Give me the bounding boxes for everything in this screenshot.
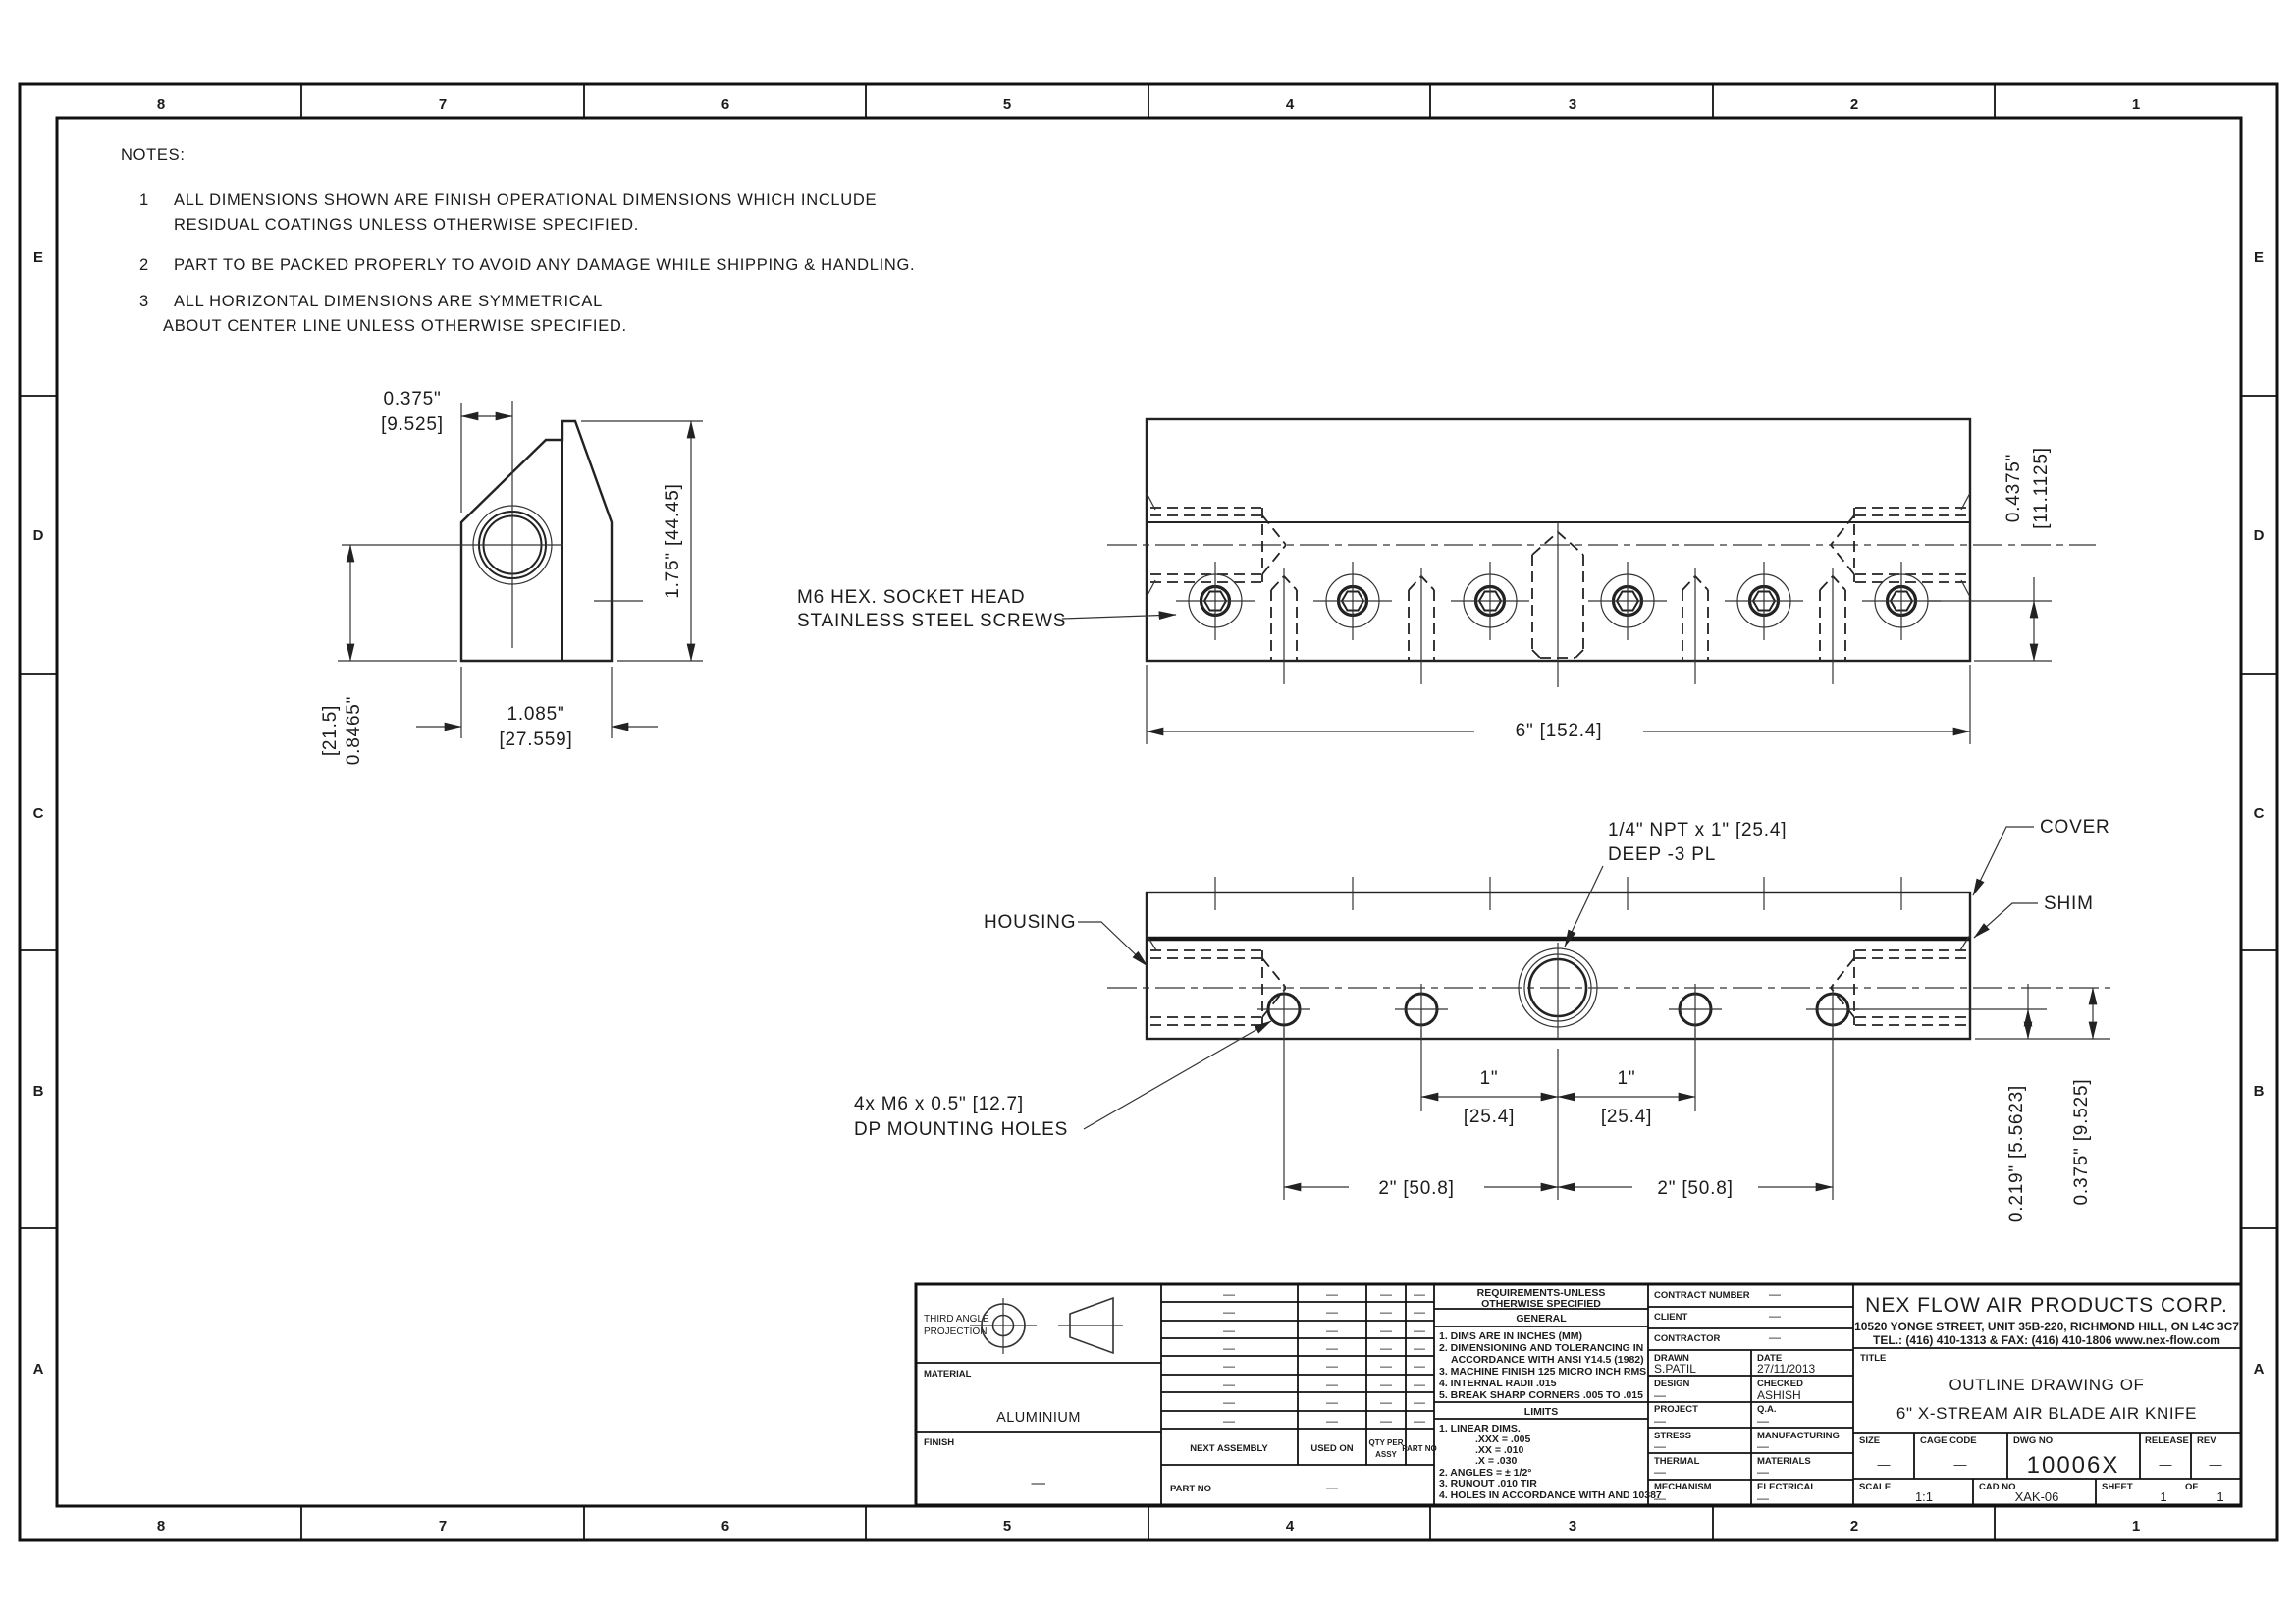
note-number: 3 [139, 293, 149, 310]
svg-text:1. DIMS ARE IN INCHES (MM): 1. DIMS ARE IN INCHES (MM) [1439, 1330, 1582, 1342]
of-value: 1 [2216, 1489, 2223, 1504]
svg-text:—: — [1380, 1341, 1392, 1355]
title-label: TITLE [1860, 1353, 1886, 1364]
material-value: ALUMINIUM [996, 1410, 1081, 1426]
general-requirements: 1. DIMS ARE IN INCHES (MM) 2. DIMENSIONI… [1439, 1330, 1646, 1401]
zone-col-top: 6 [721, 96, 729, 113]
leader-line [1078, 922, 1148, 966]
zone-col-bottom: 3 [1569, 1518, 1576, 1535]
svg-text:—: — [1380, 1395, 1392, 1409]
callout-text: COVER [2040, 817, 2110, 838]
zone-row-right: E [2254, 249, 2264, 266]
svg-text:ACCORDANCE WITH ANSI Y14.5 (19: ACCORDANCE WITH ANSI Y14.5 (1982) [1451, 1354, 1644, 1366]
threaded-hole-hidden [1682, 568, 1708, 684]
general-header: GENERAL [1516, 1313, 1567, 1325]
leader-line [1565, 866, 1603, 947]
svg-text:MANUFACTURING: MANUFACTURING [1757, 1431, 1840, 1441]
svg-text:—: — [1654, 1465, 1666, 1479]
requirements-header: OTHERWISE SPECIFIED [1481, 1298, 1601, 1310]
svg-text:—: — [1414, 1324, 1425, 1337]
dim-text: [25.4] [1464, 1107, 1515, 1127]
contract-number-value: — [1769, 1287, 1781, 1301]
zone-col-bottom: 7 [439, 1518, 447, 1535]
limits-header: LIMITS [1524, 1406, 1558, 1418]
svg-text:—: — [1654, 1439, 1666, 1453]
mounting-hole [1669, 984, 1722, 1037]
svg-text:—: — [1757, 1491, 1769, 1505]
cad-no-label: CAD NO [1979, 1482, 2015, 1492]
client-label: CLIENT [1654, 1312, 1688, 1323]
svg-text:—: — [1223, 1287, 1235, 1301]
dim-text: 6" [152.4] [1516, 721, 1603, 741]
callout-text: M6 HEX. SOCKET HEAD [797, 587, 1025, 608]
zone-col-bottom: 2 [1850, 1518, 1858, 1535]
callout-text: DEEP -3 PL [1608, 844, 1716, 865]
leader-line [1973, 827, 2034, 895]
svg-text:4. HOLES IN ACCORDANCE WITH AN: 4. HOLES IN ACCORDANCE WITH AND 10387 [1439, 1489, 1662, 1501]
dim-text: 2" [50.8] [1657, 1178, 1733, 1199]
callout-text: HOUSING [984, 912, 1076, 933]
callout-text: 4x M6 x 0.5" [12.7] [854, 1094, 1024, 1114]
dwg-no-value: 10006X [2027, 1452, 2120, 1479]
sheet-value: 1 [2160, 1489, 2166, 1504]
sheet-label: SHEET [2102, 1482, 2133, 1492]
svg-text:—: — [1757, 1439, 1769, 1453]
leader-line [1084, 1021, 1271, 1129]
callout-text: SHIM [2044, 893, 2094, 914]
zone-col-top: 7 [439, 96, 447, 113]
finish-value: — [1032, 1476, 1046, 1491]
socket-screw [1588, 562, 1667, 640]
size-value: — [1878, 1457, 1891, 1472]
zone-col-bottom: 1 [2132, 1518, 2140, 1535]
zone-row-left: B [33, 1083, 44, 1100]
rear-view: M6 HEX. SOCKET HEAD STAINLESS STEEL SCRE… [797, 419, 2096, 744]
zone-row-right: B [2254, 1083, 2265, 1100]
contractor-value: — [1769, 1330, 1781, 1344]
svg-text:—: — [1223, 1414, 1235, 1428]
callout-text: 1/4" NPT x 1" [25.4] [1608, 820, 1787, 840]
zone-row-right: A [2254, 1361, 2265, 1378]
npt-port-hole [1519, 943, 1597, 1039]
note-number: 2 [139, 256, 149, 274]
socket-screw [1313, 562, 1392, 640]
note-text: ALL HORIZONTAL DIMENSIONS ARE SYMMETRICA… [174, 293, 603, 310]
parts-col-header: PART NO [1402, 1444, 1436, 1453]
dim-text: [25.4] [1601, 1107, 1652, 1127]
socket-screw [1725, 562, 1803, 640]
company-phone: TEL.: (416) 410-1313 & FAX: (416) 410-18… [1873, 1333, 2220, 1347]
svg-text:—: — [1223, 1359, 1235, 1373]
zone-col-top: 1 [2132, 96, 2140, 113]
zone-col-top: 2 [1850, 96, 1858, 113]
svg-text:—: — [1757, 1414, 1769, 1428]
scale-label: SCALE [1859, 1482, 1891, 1492]
zone-row-right: D [2254, 527, 2265, 544]
zone-col-bottom: 4 [1286, 1518, 1295, 1535]
rev-value: — [2210, 1457, 2222, 1472]
company-name: NEX FLOW AIR PRODUCTS CORP. [1865, 1294, 2228, 1317]
zone-row-left: D [33, 527, 44, 544]
svg-text:—: — [1326, 1414, 1338, 1428]
svg-text:—: — [1326, 1324, 1338, 1337]
svg-text:—: — [1326, 1359, 1338, 1373]
notes: NOTES: 1 ALL DIMENSIONS SHOWN ARE FINISH… [121, 146, 915, 335]
parts-col-header: QTY PER [1369, 1438, 1404, 1447]
drawing-title-line2: 6" X-STREAM AIR BLADE AIR KNIFE [1896, 1404, 2197, 1423]
svg-text:—: — [1223, 1305, 1235, 1319]
svg-text:2. DIMENSIONING AND TOLERANCIN: 2. DIMENSIONING AND TOLERANCING IN [1439, 1342, 1643, 1354]
contractor-label: CONTRACTOR [1654, 1333, 1721, 1344]
svg-text:—: — [1757, 1465, 1769, 1479]
parts-col-header: ASSY [1375, 1450, 1397, 1459]
zone-col-bottom: 8 [157, 1518, 165, 1535]
svg-text:—: — [1654, 1388, 1666, 1402]
svg-text:—: — [1223, 1324, 1235, 1337]
zone-row-right: C [2254, 805, 2265, 822]
cage-code-value: — [1954, 1457, 1967, 1472]
dim-text: [9.525] [381, 414, 444, 435]
note-number: 1 [139, 191, 149, 209]
mounting-hole [1806, 984, 1859, 1037]
svg-text:—: — [1414, 1359, 1425, 1373]
svg-text:—: — [1223, 1395, 1235, 1409]
svg-text:—: — [1414, 1305, 1425, 1319]
part-no-value: — [1326, 1481, 1338, 1494]
company-address: 10520 YONGE STREET, UNIT 35B-220, RICHMO… [1854, 1320, 2239, 1333]
zone-col-top: 8 [157, 96, 165, 113]
svg-text:S.PATIL: S.PATIL [1654, 1362, 1696, 1376]
limits-requirements: 1. LINEAR DIMS. .XXX = .005 .XX = .010 .… [1439, 1423, 1662, 1501]
part-no-label: PART NO [1170, 1484, 1211, 1494]
dwg-no-label: DWG NO [2013, 1435, 2053, 1446]
extension-lines [1284, 1029, 1833, 1200]
of-label: OF [2185, 1482, 2198, 1492]
mounting-hole [1395, 984, 1448, 1037]
svg-text:3. RUNOUT .010 TIR: 3. RUNOUT .010 TIR [1439, 1478, 1537, 1489]
rev-label: REV [2197, 1435, 2216, 1446]
note-text: ALL DIMENSIONS SHOWN ARE FINISH OPERATIO… [174, 191, 877, 209]
svg-text:—: — [1414, 1341, 1425, 1355]
leader-line [1974, 903, 2038, 938]
threaded-hole-hidden [1409, 568, 1434, 684]
dim-text: 0.8465" [344, 696, 364, 765]
dim-text: 0.4375" [2003, 454, 2024, 522]
dim-text: 1.085" [507, 704, 564, 725]
note-text: PART TO BE PACKED PROPERLY TO AVOID ANY … [174, 256, 915, 274]
svg-text:—: — [1654, 1491, 1666, 1505]
projection-label: THIRD ANGLE [924, 1314, 989, 1325]
release-value: — [2160, 1457, 2172, 1472]
drawing-sheet: 8 7 6 5 4 3 2 1 8 7 6 5 4 3 2 1 E D C B … [0, 0, 2296, 1624]
dim-text: [11.1125] [2031, 447, 2052, 529]
svg-text:27/11/2013: 27/11/2013 [1757, 1362, 1815, 1376]
third-angle-projection-icon [970, 1298, 1123, 1354]
projection-label: PROJECTION [924, 1326, 987, 1337]
zone-row-left: C [33, 805, 44, 822]
release-label: RELEASE [2145, 1435, 2189, 1446]
parts-col-header: NEXT ASSEMBLY [1190, 1443, 1268, 1454]
dim-text: 0.375" [9.525] [2071, 1079, 2092, 1206]
cad-drawing: 8 7 6 5 4 3 2 1 8 7 6 5 4 3 2 1 E D C B … [0, 0, 2296, 1624]
svg-text:—: — [1326, 1305, 1338, 1319]
contract-number-label: CONTRACT NUMBER [1654, 1290, 1750, 1301]
side-view: 0.375" [9.525] 1.75" [44.45] 0.8465" [21… [320, 389, 703, 765]
svg-text:—: — [1326, 1395, 1338, 1409]
mounting-hole [1257, 984, 1310, 1037]
notes-heading: NOTES: [121, 146, 186, 164]
leader-line [1062, 615, 1176, 619]
zone-col-top: 4 [1286, 96, 1295, 113]
socket-screw [1176, 562, 1255, 640]
callout-text: DP MOUNTING HOLES [854, 1119, 1068, 1140]
parts-list: ———— ———— ———— ———— ———— ———— ———— ———— [1223, 1287, 1425, 1428]
svg-text:.X = .030: .X = .030 [1475, 1455, 1517, 1467]
svg-text:—: — [1380, 1378, 1392, 1391]
parts-col-header: USED ON [1310, 1443, 1353, 1454]
finish-label: FINISH [924, 1437, 954, 1448]
note-text: ABOUT CENTER LINE UNLESS OTHERWISE SPECI… [163, 317, 627, 335]
svg-text:—: — [1380, 1305, 1392, 1319]
size-label: SIZE [1859, 1435, 1880, 1446]
svg-text:—: — [1414, 1378, 1425, 1391]
zone-row-left: A [33, 1361, 44, 1378]
zone-col-bottom: 5 [1003, 1518, 1011, 1535]
svg-text:3. MACHINE FINISH 125 MICRO IN: 3. MACHINE FINISH 125 MICRO INCH RMS [1439, 1366, 1646, 1378]
dim-text: 0.219" [5.5623] [2006, 1085, 2027, 1222]
dim-text: 1" [1480, 1068, 1499, 1089]
note-text: RESIDUAL COATINGS UNLESS OTHERWISE SPECI… [174, 216, 639, 234]
svg-text:—: — [1380, 1414, 1392, 1428]
svg-text:—: — [1380, 1287, 1392, 1301]
svg-text:—: — [1380, 1324, 1392, 1337]
cage-code-label: CAGE CODE [1920, 1435, 1977, 1446]
threaded-hole-hidden [1820, 568, 1845, 684]
drawing-title-line1: OUTLINE DRAWING OF [1949, 1376, 2144, 1394]
svg-text:5. BREAK SHARP CORNERS .005 TO: 5. BREAK SHARP CORNERS .005 TO .015 [1439, 1389, 1643, 1401]
dim-text: 0.375" [383, 389, 441, 409]
bottom-view: 1/4" NPT x 1" [25.4] DEEP -3 PL COVER SH… [854, 817, 2110, 1222]
svg-text:—: — [1654, 1414, 1666, 1428]
title-block: THIRD ANGLE PROJECTION MATERIAL ALUMINIU… [916, 1284, 2241, 1505]
callout-text: STAINLESS STEEL SCREWS [797, 611, 1066, 631]
material-label: MATERIAL [924, 1369, 972, 1380]
dim-text: [27.559] [499, 730, 572, 750]
dim-text: 1" [1618, 1068, 1636, 1089]
svg-text:—: — [1414, 1414, 1425, 1428]
svg-text:—: — [1414, 1395, 1425, 1409]
dim-text: [21.5] [320, 705, 341, 756]
svg-text:—: — [1223, 1341, 1235, 1355]
svg-text:—: — [1223, 1378, 1235, 1391]
svg-text:—: — [1380, 1359, 1392, 1373]
svg-text:—: — [1414, 1287, 1425, 1301]
svg-text:ASHISH: ASHISH [1757, 1388, 1801, 1402]
zone-col-bottom: 6 [721, 1518, 729, 1535]
client-value: — [1769, 1309, 1781, 1323]
socket-screw [1451, 562, 1529, 640]
scale-value: 1:1 [1915, 1489, 1933, 1504]
dim-text: 1.75" [44.45] [663, 483, 683, 599]
dim-text: 2" [50.8] [1378, 1178, 1454, 1199]
zone-col-top: 5 [1003, 96, 1011, 113]
zone-col-top: 3 [1569, 96, 1576, 113]
svg-text:4. INTERNAL RADII .015: 4. INTERNAL RADII .015 [1439, 1378, 1557, 1389]
zone-row-left: E [33, 249, 43, 266]
svg-text:—: — [1326, 1287, 1338, 1301]
svg-text:—: — [1326, 1341, 1338, 1355]
npt-hole-hidden [1532, 522, 1583, 687]
svg-text:—: — [1326, 1378, 1338, 1391]
threaded-hole-hidden [1271, 568, 1297, 684]
cad-no-value: XAK-06 [2015, 1489, 2059, 1504]
